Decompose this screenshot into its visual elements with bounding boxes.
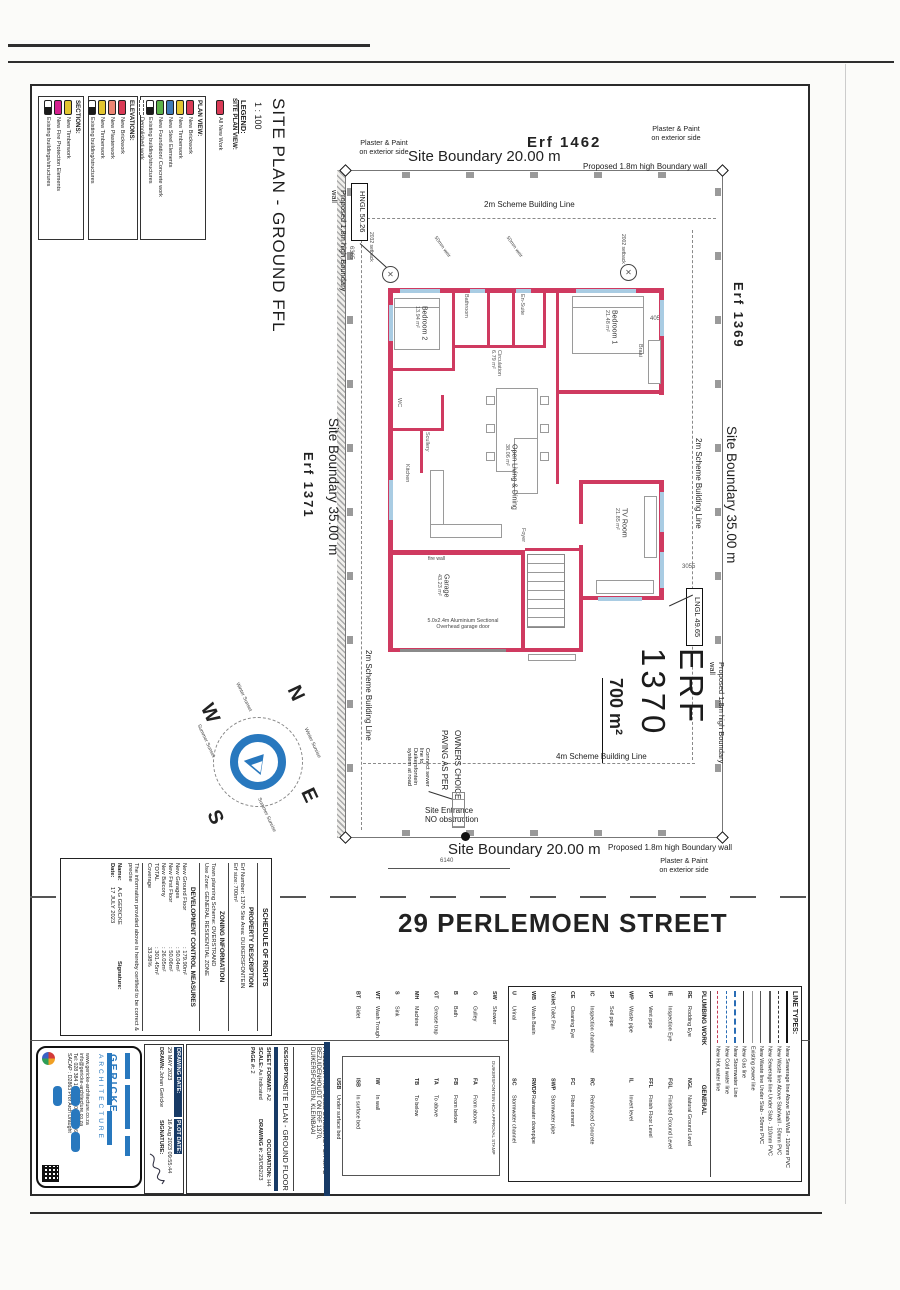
development-measure-row: Coverage33.98% (146, 863, 152, 1031)
furniture-chair (540, 452, 549, 461)
boundary-wall-note-bottom: Proposed 1.8m high Boundary wall (608, 843, 732, 852)
staircase (527, 554, 565, 628)
linetypes-legend-box: LINE TYPES: New Sewerage line Above Slab… (508, 986, 802, 1182)
drawing-date-value: 29 MAY 2023 (166, 1047, 172, 1117)
fire-wall-label: fire wall (428, 556, 445, 562)
divider (199, 863, 200, 1031)
window (660, 492, 664, 532)
general-heading: GENERAL (700, 1085, 707, 1115)
page-edge-line (845, 64, 846, 1204)
plaster-note-topright: Plaster & Painton exterior side (640, 124, 712, 142)
room-label-ensuite: En-Suite (519, 294, 525, 344)
legend-item: Existing building/structures (88, 100, 96, 236)
divider (257, 863, 258, 1031)
property-line: Erf Number: 1370 Site Area: DUIKERSFONTE… (239, 863, 245, 1031)
abbrev-headers-column: PLUMBING WORK GENERAL (700, 991, 707, 1177)
description-column: DESCRIPTION: SITE PLAN - GROUND FLOOR (281, 1047, 290, 1191)
drawing-scale: 1 : 100 (253, 102, 263, 162)
garage-door (400, 649, 506, 652)
firm-name: GERICKE (107, 1054, 118, 1184)
navy-divider-bar (274, 1047, 278, 1191)
street-name-label: 29 PERLEMOEN STREET (398, 908, 728, 939)
wall (388, 550, 393, 652)
development-measures-heading: DEVELOPMENT CONTROL MEASURES (189, 863, 196, 1031)
dim-line-6140 (388, 868, 510, 869)
drawing-date-label: DRAWING DATE: (174, 1047, 182, 1117)
linetype-item: New Sewerage line Above Slab/Wall - 110m… (783, 991, 789, 1177)
plumbing-work-heading: PLUMBING WORK (700, 991, 707, 1083)
abbreviation-row: WTWash TroughIWIn wall (368, 991, 386, 1177)
wall (455, 345, 546, 348)
room-label-braai: Braai (637, 344, 643, 378)
legend-site-plan-view-items: All New Work (208, 100, 224, 242)
certification-note: The information provided above is hereby… (123, 863, 139, 1031)
linetype-item: Existing sewer line (749, 991, 755, 1177)
drawing-title: SITE PLAN - GROUND FFL (268, 98, 288, 408)
boundary-wall-note-top: Proposed 1.8m high Boundary wall (583, 162, 707, 171)
erf-area-label: 700 m² (602, 678, 626, 763)
wall (420, 428, 423, 473)
property-description-heading: PROPERTY DESCRIPTION (247, 863, 254, 1031)
wall (388, 428, 444, 431)
window (660, 300, 664, 336)
firm-website: www.gericke-architecture.co.za (84, 1053, 90, 1185)
window (389, 305, 393, 341)
scale-label: SCALE: (257, 1047, 263, 1068)
wall (579, 480, 583, 524)
scheme-line-2m-top (352, 218, 716, 219)
legend-swatch-icon (108, 100, 116, 115)
linetype-item: New Waste line Above Slab/wall - 50mm PV… (775, 991, 781, 1177)
linetype-sample-icon (778, 991, 779, 1043)
qr-code-icon (42, 1165, 59, 1182)
linetype-item: New Stormwater Line (731, 991, 737, 1177)
schedule-heading: SCHEDULE OF RIGHTS (261, 863, 268, 1031)
legend-heading: LEGEND: (239, 100, 248, 160)
scheme-2m-label-top: 2m Scheme Building Line (484, 200, 575, 209)
development-measure-row: New Garages: 50.04m² (174, 863, 180, 1031)
erf-1369-label: Erf 1369 (731, 282, 746, 372)
wall (521, 648, 583, 652)
abbreviation-row: IEInspection EyeFGLFinished Ground Level (660, 991, 678, 1177)
legend-item: New Foundation/ Concrete work (156, 100, 164, 236)
drawn-value: Johan Gericke (158, 1071, 164, 1119)
legend-item: Existing buildings/structures (44, 100, 52, 236)
firm-type: ARCHITECTURE (97, 1054, 104, 1184)
legend-item: New Timberwork (98, 100, 106, 236)
wall (521, 550, 525, 652)
legend-item: New Brickwork (118, 100, 126, 236)
legend-item: New Steel Elements (166, 100, 174, 236)
legend-swatch-icon (146, 100, 154, 115)
legend-swatch-icon (44, 100, 52, 115)
dim-6365: 6365 (348, 246, 354, 286)
abbreviation-row: SWShower (485, 991, 503, 1177)
abbreviation-row: UUrinalSCStormwater channel (504, 991, 522, 1177)
legend-swatch-icon (118, 100, 126, 115)
room-label-garage: Garage43.23 m² (436, 574, 450, 640)
dim-3055: 3055 (682, 564, 695, 570)
legend-item: New Timberwork (176, 100, 184, 236)
linetype-sample-icon (734, 991, 736, 1043)
drawn-label: DRAWN: (158, 1047, 164, 1069)
legend-swatch-icon (166, 100, 174, 115)
wall (580, 480, 664, 484)
room-label-kitchen: Kitchen (404, 464, 410, 510)
linetype-sample-icon (760, 991, 761, 1043)
window (660, 552, 664, 588)
titleblock-main: PROJECT: PROPOSED DWELLING FOR MR D BEZU… (186, 1044, 330, 1194)
legend-swatch-icon (139, 100, 144, 115)
wall (441, 395, 444, 431)
entrance-steps (452, 792, 465, 828)
room-label-wc: WC (396, 398, 402, 428)
legend-swatch-icon (54, 100, 62, 115)
legend-site-plan-view-heading: SITE PLAN VIEW: (224, 98, 238, 240)
room-label-living: Open Living & Dining38.06 m² (504, 444, 518, 544)
legend-swatch-icon (64, 100, 72, 115)
boundary-top-label: Site Boundary 20.00 m (408, 148, 561, 165)
legend-item: New Plasterwork (108, 100, 116, 236)
boundary-left-label: Site Boundary 35.00 m (326, 418, 341, 583)
dim-2002-setback: 2002 setback (620, 234, 626, 284)
inspection-chamber-icon: ✕ (382, 266, 399, 283)
zoning-heading: ZONING INFORMATION (218, 863, 225, 1031)
linetype-item: New Cold water line (723, 991, 729, 1177)
wall (558, 390, 664, 394)
legend-elevations-box: ELEVATIONS: New BrickworkNew Plasterwork… (88, 96, 138, 240)
divider (293, 1047, 294, 1191)
occupation-label: OCCUPATION: (265, 1139, 271, 1178)
zoning-line: Town planning Scheme: OVERSTRAND (210, 863, 216, 1031)
furniture-pillow (572, 296, 644, 308)
wall (487, 288, 490, 346)
linetype-sample-icon (786, 991, 788, 1043)
linetype-sample-icon (743, 991, 744, 1043)
certify-name-column: Name:A.G GERICKESignature: (116, 863, 122, 1031)
legend-item: New Fire Protection Elements (54, 100, 62, 236)
window (576, 289, 636, 293)
abbreviation-row: GGulleyFAFrom above (465, 991, 483, 1177)
occupation-value: H4 (265, 1179, 271, 1186)
room-label-bedroom1: Bedroom 121.48 m² (604, 310, 618, 390)
abbreviation-row: ICInspection chamberRCReinforced Concret… (582, 991, 600, 1177)
scan-artifact-line (8, 61, 894, 63)
abbreviation-row: USBUnder surface bed (329, 991, 347, 1177)
abbreviation-row: SSink (387, 991, 405, 1177)
development-measure-row: New Balcony: 26.05m² (160, 863, 166, 1031)
linetype-sample-icon (752, 991, 753, 1043)
furniture-chair (540, 424, 549, 433)
page-label: PAGE #: (249, 1047, 255, 1069)
logo-pill-bars-icon (48, 1086, 84, 1176)
linetype-sample-icon (726, 991, 727, 1043)
signature-scribble (146, 1150, 170, 1186)
abbreviation-row: RERodding EyeNGLNatural Ground Level (680, 991, 698, 1177)
legend-swatch-icon (88, 100, 96, 115)
scale-value: As Indicated (257, 1069, 263, 1117)
window (389, 480, 393, 520)
linetype-sample-icon (717, 991, 718, 1043)
legend-elevations-heading: ELEVATIONS: (128, 100, 135, 236)
wall (556, 288, 559, 394)
wall (525, 548, 579, 551)
erf-1370-label: ERF 1370 (634, 648, 710, 803)
legend-swatch-icon (186, 100, 194, 115)
description-label: DESCRIPTION: (282, 1047, 288, 1083)
development-measure-row: New First Floor: 50.06m² (167, 863, 173, 1031)
description-value: SITE PLAN - GROUND FLOOR (281, 1085, 290, 1191)
legend-swatch-icon (176, 100, 184, 115)
furniture-chair (486, 452, 495, 461)
room-label-bathroom: Bathroom (463, 294, 469, 344)
development-measure-row: TOTAL: 301.45m² (153, 863, 159, 1031)
legend-sections-box: SECTIONS: New TimberworkNew Fire Protect… (38, 96, 84, 240)
abbreviation-row: BBathFBFrom below (446, 991, 464, 1177)
room-label-tv: TV Room21.85 m² (614, 508, 628, 580)
wall (512, 288, 515, 346)
sheet-occupation-column: SHEET FORMAT: A2 OCCUPATION: H4 (265, 1047, 271, 1191)
wall (579, 545, 583, 652)
legend-swatch-icon (156, 100, 164, 115)
schedule-of-rights-table: SCHEDULE OF RIGHTS PROPERTY DESCRIPTION … (60, 858, 272, 1036)
abbreviation-row: WBWash BasinRWDPRainwater downpipe (524, 991, 542, 1177)
sheet-format-value: A2 (265, 1094, 271, 1138)
abbreviation-row: CECleaning EyeFCFibre cement (563, 991, 581, 1177)
date-headers-column: DRAWING DATE: PLOT DATE: (174, 1047, 182, 1191)
architect-logo-box: GERICKE ARCHITECTURE www.gericke-archite… (36, 1046, 142, 1188)
abbreviation-row: ToiletToilet PanSWPStormwater pipe (543, 991, 561, 1177)
wall (543, 288, 546, 346)
drawing-no-value: 29/DB2/23 (257, 1154, 263, 1180)
legend-swatch-icon (98, 100, 106, 115)
window (400, 289, 440, 293)
furniture-chair (540, 396, 549, 405)
page-value: 2 (249, 1071, 255, 1074)
abbreviation-row: GTGrease trapTATo above (426, 991, 444, 1177)
linetype-item: New Waste line Under Slab - 50mm PVC (757, 991, 763, 1177)
wall (556, 394, 559, 484)
legend-item: New Timberwork (64, 100, 72, 236)
boundary-wall-note-right: Proposed 1.8m high Boundary wall (708, 662, 726, 777)
plot-date-label: PLOT DATE: (174, 1119, 182, 1154)
braai-unit (648, 340, 661, 384)
boundary-wall-note-left: Proposed 1.8m high Boundary wall (330, 190, 348, 300)
furniture-kitchen-counter (430, 470, 444, 532)
linetype-sample-icon (769, 991, 771, 1043)
linetypes-heading: LINE TYPES: (791, 991, 798, 1177)
legend-swatch-icon (216, 100, 224, 115)
certify-date-column: Date:17 JULY 2023 (109, 863, 115, 1031)
legend-item: All New Work (216, 100, 224, 242)
abbreviation-row: WPWaste pipeILInvert level (621, 991, 639, 1177)
dim-2032-setback: 2032 setback (368, 232, 374, 282)
skyline-graphic-icon (100, 1052, 136, 1162)
legend-sections-heading: SECTIONS: (74, 100, 81, 236)
scheme-2m-label-right: 2m Scheme Building Line (694, 438, 703, 548)
room-label-scullery: Scullery (424, 432, 430, 472)
project-column: PROJECT: PROPOSED DWELLING FOR MR D BEZU… (297, 1047, 327, 1191)
page-column: PAGE #: 2 (249, 1047, 255, 1191)
garage-door-note: 5.0x2.4m Aluminium SectionalOverhead gar… (408, 618, 518, 630)
scan-artifact-line (8, 44, 370, 47)
room-label-foyer: Foyer (520, 528, 526, 562)
scanned-site-plan-page: SITE PLAN - GROUND FFL 1 : 100 LEGEND: S… (0, 0, 900, 1290)
scheme-line-2m-left (361, 225, 362, 830)
room-label-bedroom2: Bedroom 213.94 m² (414, 306, 428, 378)
abbreviation-row: BTBidetISBIn surface bed (348, 991, 366, 1177)
divider (710, 991, 711, 1177)
linetype-item: New Hot water line (714, 991, 720, 1177)
furniture-couch (596, 580, 654, 594)
drawing-no-label: DRAWING #: (257, 1119, 263, 1153)
site-entrance-marker (461, 832, 470, 841)
zoning-line: Use Zone: GENERAL RESIDENTIAL ZONE (203, 863, 209, 1031)
plaster-note-topleft: Plaster & Painton exterior side (348, 138, 420, 156)
erf-1371-label: Erf 1371 (301, 452, 316, 542)
boundary-right-label: Site Boundary 35.00 m (724, 426, 739, 591)
abbreviation-row: VPVent pipeFFLFinish Floor Level (641, 991, 659, 1177)
linetype-item: New Sewerage line Under Slab - 110mm PVC (766, 991, 772, 1177)
hngl-level-box: HNGL 50.26 (351, 183, 368, 241)
property-line: Erf size: 700m² (232, 863, 238, 1031)
divider (142, 863, 143, 1031)
furniture-kitchen-counter (430, 524, 502, 538)
scheme-2m-label-left: 2m Scheme Building Line (364, 650, 373, 760)
wall (388, 550, 525, 555)
boundary-bottom-label: Site Boundary 20.00 m (448, 841, 601, 858)
divider (228, 863, 229, 1031)
legend-plan-view-box: PLAN VIEW: New BrickworkNew TimberworkNe… (140, 96, 206, 240)
abbreviation-row: MHMachineTBTo below (407, 991, 425, 1177)
abbreviation-row: SPSoil pipe (602, 991, 620, 1177)
scale-drawingno-column: SCALE: As Indicated DRAWING #: 29/DB2/23 (257, 1047, 263, 1191)
dim-6140: 6140 (440, 858, 453, 864)
legend-item: Demolished work (138, 100, 144, 236)
window (470, 289, 485, 293)
wall (452, 288, 455, 370)
furniture-couch (644, 496, 657, 558)
sheet-format-label: SHEET FORMAT: (265, 1047, 271, 1092)
legend-item: Existing building/structures (146, 100, 154, 236)
plaster-note-bottom: Plaster & Painton exterior side (648, 856, 720, 874)
window (598, 597, 642, 601)
firm-logo-mark-icon (42, 1052, 55, 1065)
window (516, 289, 531, 293)
legend-plan-view-heading: PLAN VIEW: (196, 100, 203, 236)
boundary-piers-top (346, 172, 722, 178)
legend-item: New Brickwork (186, 100, 194, 236)
sheet-bottom-line (30, 1212, 822, 1214)
furniture-chair (486, 424, 495, 433)
room-label-circulation: Circulation6.79 m² (490, 350, 502, 410)
development-measure-row: New Ground Floor: 179.90m² (181, 863, 187, 1031)
linetype-item: New Gas line (740, 991, 746, 1177)
porch-step (528, 654, 576, 661)
